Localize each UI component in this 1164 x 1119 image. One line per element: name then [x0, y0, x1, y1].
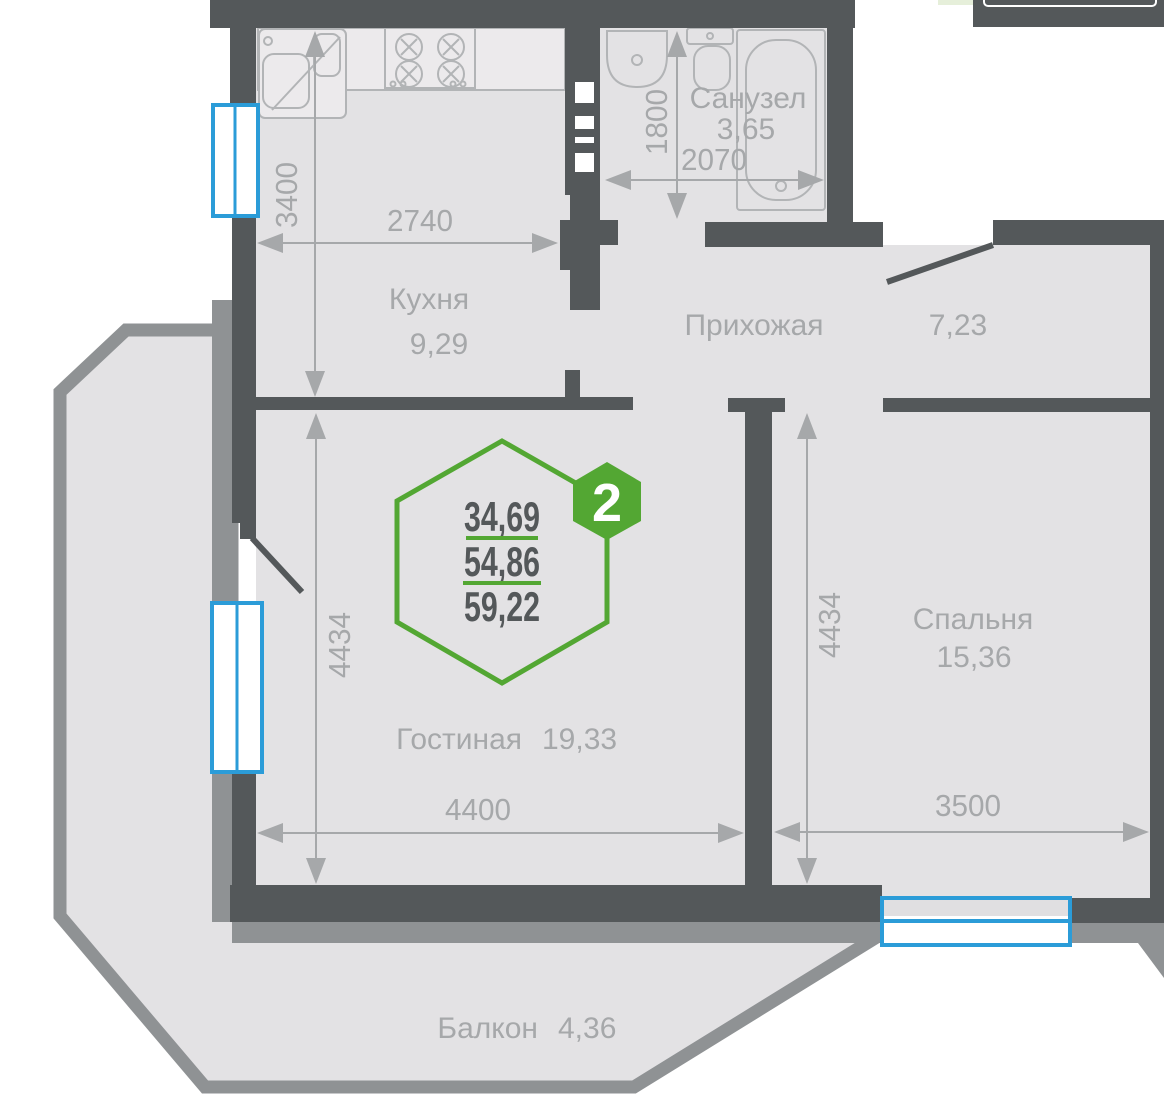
wall-bath-bottom-right — [705, 222, 883, 247]
dim-bedroom-depth: 4434 — [812, 592, 847, 658]
vent-slot — [575, 82, 594, 103]
room-area-kitchen: 9,29 — [410, 328, 468, 361]
badge-area-total: 59,22 — [464, 583, 540, 630]
vent-slot — [575, 116, 594, 129]
wall-kitchen-door-stub — [565, 370, 580, 397]
wall-bottom — [230, 885, 882, 922]
room-area-bedroom: 15,36 — [936, 641, 1011, 674]
room-label-kitchen: Кухня — [389, 283, 469, 316]
room-label-living: Гостиная — [396, 723, 522, 756]
floorplan-svg: 2740 3400 2070 1800 4400 4434 3500 4434 … — [0, 0, 1164, 1119]
room-area-hallway: 7,23 — [929, 309, 987, 342]
badge-area-main: 54,86 — [464, 538, 540, 585]
dim-bath-depth: 1800 — [639, 89, 674, 155]
vent-slot — [575, 153, 594, 172]
wall-bath-right — [827, 27, 853, 222]
balcony-wall-bottom — [232, 922, 880, 943]
bedroom-window — [882, 898, 1070, 945]
wall-bedroom-top — [883, 398, 1150, 412]
dim-bath-width: 2070 — [681, 142, 747, 177]
wall-left-mid — [232, 215, 256, 523]
neighbor-balcony-strip — [1068, 922, 1164, 943]
room-area-living: 19,33 — [542, 723, 617, 756]
wall-kitchen-hall — [252, 397, 633, 410]
dim-kitchen-width: 2740 — [387, 203, 453, 238]
room-label-bathroom: Санузел — [690, 82, 807, 115]
balcony-door-window — [212, 603, 262, 772]
neighbor-green-sliver — [938, 0, 973, 5]
wall-left-top — [230, 0, 256, 105]
floorplan-page: 2740 3400 2070 1800 4400 4434 3500 4434 … — [0, 0, 1164, 1119]
wall-living-bed-cap — [728, 398, 785, 412]
room-area-balcony: 4,36 — [558, 1012, 616, 1045]
dim-living-width: 4400 — [445, 792, 511, 827]
dim-living-depth: 4434 — [322, 612, 357, 678]
wall-right — [1150, 220, 1164, 923]
badge-room-count: 2 — [592, 473, 622, 533]
wall-top-right-block — [973, 0, 1164, 27]
wall-kitchen-right — [570, 195, 600, 310]
neighbor-balcony-corner — [1138, 943, 1164, 978]
kitchen-window — [213, 105, 258, 216]
room-label-hallway: Прихожая — [684, 309, 823, 342]
dim-bedroom-width: 3500 — [935, 788, 1001, 823]
room-label-balcony: Балкон — [437, 1012, 538, 1045]
wall-hall-top-right — [993, 220, 1164, 245]
vent-slot — [575, 137, 594, 143]
stove — [385, 28, 475, 88]
wall-living-bedroom — [745, 410, 772, 885]
dim-kitchen-depth: 3400 — [269, 162, 304, 228]
badge-area-living: 34,69 — [464, 493, 540, 540]
wall-bottom-bedroom — [1068, 898, 1164, 923]
wall-top — [210, 0, 855, 28]
room-area-bathroom: 3,65 — [717, 113, 775, 146]
wall-bath-bottom-left2 — [560, 220, 573, 270]
room-label-bedroom: Спальня — [913, 603, 1034, 636]
